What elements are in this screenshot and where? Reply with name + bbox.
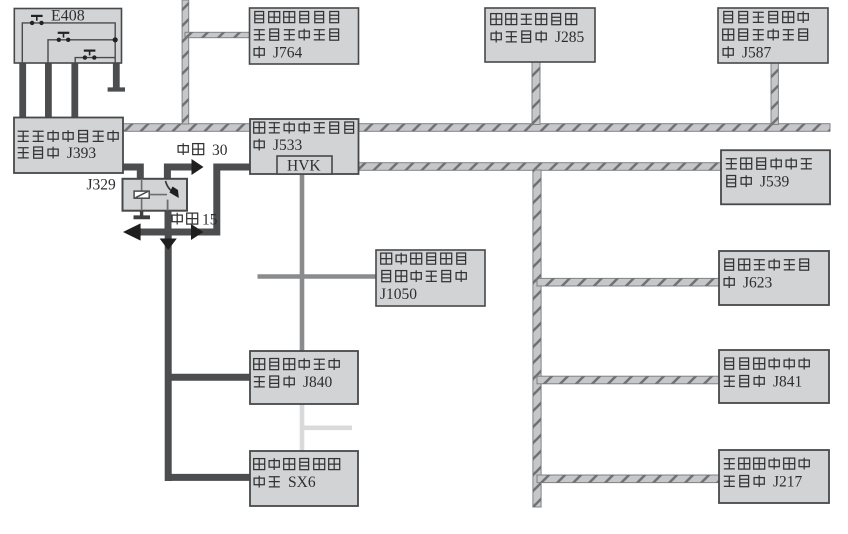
- svg-text:J623: J623: [743, 275, 773, 292]
- svg-text:J393: J393: [67, 145, 97, 162]
- svg-text:E408: E408: [51, 8, 85, 25]
- svg-text:J217: J217: [773, 474, 803, 491]
- svg-text:SX6: SX6: [288, 474, 316, 491]
- svg-text:J840: J840: [303, 374, 333, 391]
- svg-text:J539: J539: [760, 174, 790, 191]
- svg-text:J841: J841: [773, 374, 802, 391]
- svg-text:J1050: J1050: [380, 286, 417, 303]
- svg-text:15: 15: [202, 212, 218, 229]
- svg-text:J285: J285: [555, 29, 585, 46]
- svg-text:J329: J329: [87, 177, 117, 194]
- svg-text:J587: J587: [742, 45, 772, 62]
- svg-text:J533: J533: [273, 137, 303, 154]
- svg-text:J764: J764: [273, 45, 303, 62]
- svg-text:HVK: HVK: [287, 158, 321, 175]
- svg-text:30: 30: [212, 142, 228, 159]
